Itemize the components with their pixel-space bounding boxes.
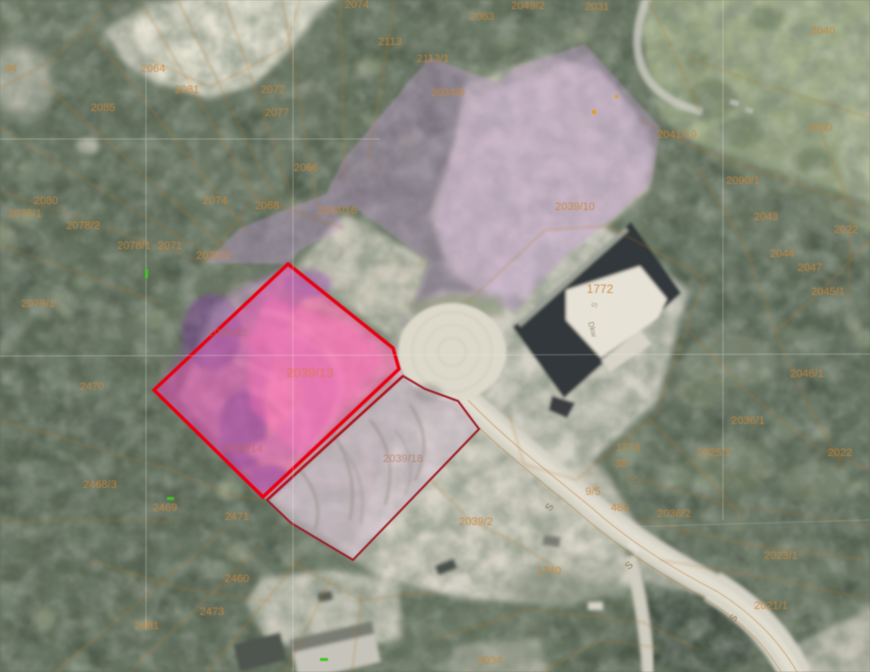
svg-text:1772: 1772	[587, 282, 614, 296]
svg-text:2081: 2081	[175, 84, 199, 96]
svg-text:38: 38	[615, 458, 627, 470]
svg-text:2481: 2481	[135, 620, 159, 632]
svg-text:2090/1: 2090/1	[726, 175, 760, 187]
svg-text:2468/3: 2468/3	[83, 479, 117, 491]
svg-text:2074: 2074	[203, 195, 227, 207]
svg-text:9/5: 9/5	[585, 486, 600, 498]
svg-text:2113/1: 2113/1	[417, 53, 450, 65]
svg-text:2034/16: 2034/16	[317, 205, 357, 217]
svg-text:2079/1: 2079/1	[21, 298, 55, 310]
svg-text:2030/12: 2030/12	[208, 327, 248, 339]
svg-text:2031: 2031	[585, 1, 609, 13]
svg-text:2471: 2471	[225, 511, 249, 523]
svg-text:2063: 2063	[470, 11, 494, 23]
svg-text:2022: 2022	[834, 224, 858, 236]
svg-text:2469: 2469	[153, 502, 177, 514]
svg-text:1740: 1740	[537, 565, 561, 577]
svg-text:480: 480	[611, 502, 629, 514]
svg-text:2043: 2043	[754, 211, 778, 223]
svg-text:2078/1: 2078/1	[117, 240, 151, 252]
svg-text:2044: 2044	[770, 248, 794, 260]
svg-text:2064: 2064	[141, 63, 165, 75]
svg-text:2085: 2085	[91, 102, 115, 114]
svg-text:2034: 2034	[478, 655, 502, 667]
svg-text:2075/1: 2075/1	[8, 208, 42, 220]
svg-text:2039/14: 2039/14	[223, 443, 263, 455]
svg-text:2039/18: 2039/18	[383, 453, 423, 465]
svg-text:2041/19: 2041/19	[657, 129, 697, 141]
svg-text:2047: 2047	[798, 262, 822, 274]
svg-text:1773: 1773	[616, 442, 640, 454]
svg-text:2050: 2050	[808, 122, 832, 134]
svg-text:2049/2: 2049/2	[511, 0, 545, 12]
svg-text:2071: 2071	[158, 240, 182, 252]
svg-text:2025/1: 2025/1	[697, 447, 731, 459]
svg-text:2040: 2040	[811, 25, 835, 37]
svg-text:2066: 2066	[294, 162, 318, 174]
svg-text:2113: 2113	[378, 36, 402, 48]
svg-text:2068: 2068	[255, 200, 279, 212]
svg-text:2460: 2460	[225, 573, 249, 585]
svg-text:2070/1: 2070/1	[196, 250, 230, 262]
svg-text:2078/2: 2078/2	[66, 220, 100, 232]
svg-text:2072: 2072	[261, 84, 285, 96]
svg-text:2022: 2022	[828, 447, 852, 459]
svg-text:2473: 2473	[200, 606, 224, 618]
svg-text:2077: 2077	[265, 107, 289, 119]
svg-text:2021/1: 2021/1	[754, 600, 788, 612]
svg-text:2080: 2080	[34, 195, 58, 207]
svg-text:94: 94	[5, 63, 17, 75]
svg-text:2074: 2074	[345, 0, 369, 11]
svg-text:2470: 2470	[80, 381, 104, 393]
svg-text:2023/1: 2023/1	[764, 550, 798, 562]
svg-text:2039/2: 2039/2	[459, 516, 493, 528]
svg-text:2039/10: 2039/10	[555, 201, 595, 213]
svg-text:2034/6: 2034/6	[431, 87, 465, 99]
svg-text:2045/1: 2045/1	[811, 286, 845, 298]
svg-text:2046/1: 2046/1	[790, 368, 824, 380]
svg-text:2036/1: 2036/1	[731, 415, 765, 427]
svg-text:2036/2: 2036/2	[657, 508, 691, 520]
svg-text:2039/13: 2039/13	[287, 365, 334, 380]
